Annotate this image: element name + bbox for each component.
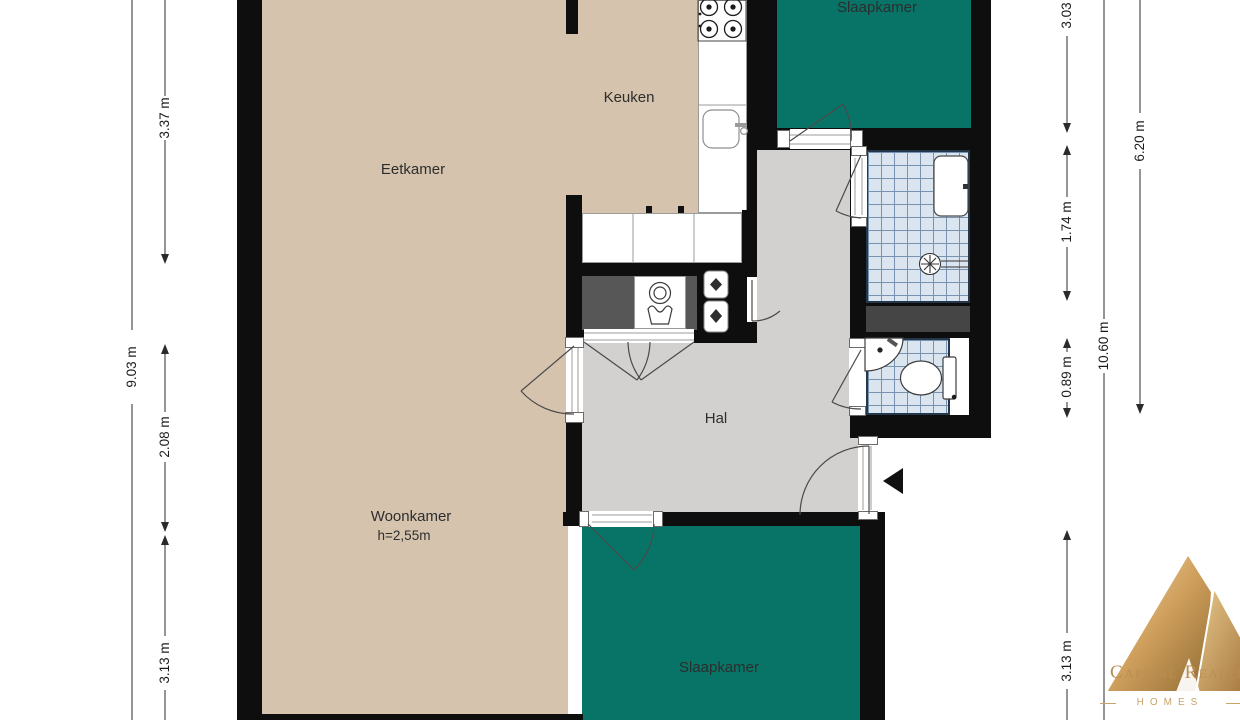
dim-left-9-03: 9.03 m — [123, 322, 141, 412]
door-opening-bedroom-top — [790, 129, 850, 149]
entrance-arrow-icon — [883, 468, 903, 494]
door-frame — [653, 511, 663, 527]
wall — [237, 714, 583, 720]
door-opening-woonkamer — [566, 348, 583, 412]
door-frame — [858, 436, 878, 445]
door-frame — [579, 511, 589, 527]
toilet-room-floor — [866, 338, 950, 415]
wall — [971, 0, 991, 145]
room-label-slaapkamer-bottom: Slaapkamer — [639, 659, 799, 676]
dim-right-1-74: 1.74 m — [1058, 177, 1076, 267]
dim-left-3-37: 3.37 m — [156, 73, 174, 163]
room-label-hal: Hal — [636, 410, 796, 427]
toilet-room-side-strip — [950, 338, 969, 415]
wall — [566, 195, 582, 347]
wall — [860, 512, 885, 720]
washing-machine-box — [634, 276, 686, 329]
wall — [747, 0, 777, 145]
door-frame — [565, 412, 584, 423]
shower-room-floor — [866, 150, 970, 303]
room-label-slaapkamer-top: Slaapkamer — [797, 0, 957, 16]
kitchen-counter-vertical — [698, 0, 747, 213]
door-frame — [565, 337, 584, 348]
dim-left-2-08: 2.08 m — [156, 392, 174, 482]
dim-right-10-60: 10.60 m — [1095, 301, 1113, 391]
dim-left-3-13: 3.13 m — [156, 618, 174, 708]
door-opening-bedroom-bottom — [588, 511, 654, 527]
tech-closet-door-opening — [747, 277, 757, 322]
hall-main-floor — [582, 343, 850, 512]
logo-tagline-text: HOMES — [1118, 697, 1222, 708]
dim-right-3-03: 3.03 m — [1058, 0, 1076, 53]
shower-door-opening — [851, 155, 867, 218]
dim-right-0-89: 0.89 m — [1058, 332, 1076, 422]
door-frame — [851, 146, 867, 156]
toilet-door-opening — [849, 347, 866, 406]
door-opening-closet — [584, 329, 694, 343]
dim-right-3-13: 3.13 m — [1058, 616, 1076, 706]
wall — [747, 143, 757, 276]
room-label-keuken: Keuken — [549, 89, 709, 106]
room-slaapkamer-top-floor — [777, 0, 971, 130]
shaft-band — [866, 306, 970, 332]
door-frame — [858, 511, 878, 520]
logo-brand-text: Capital Realti — [1110, 662, 1240, 684]
room-label-woonkamer-height: h=2,55m — [324, 528, 484, 543]
door-frame — [851, 217, 867, 227]
door-frame — [849, 338, 866, 348]
front-door-opening — [858, 443, 878, 513]
room-keuken-floor — [566, 0, 698, 213]
hall-corridor-floor — [757, 150, 852, 343]
floor-plan: Eetkamer Keuken Woonkamer h=2,55m Hal Sl… — [0, 0, 1240, 720]
door-frame — [849, 406, 866, 416]
room-eetkamer-woonkamer-floor — [262, 0, 568, 714]
room-label-eetkamer: Eetkamer — [333, 161, 493, 178]
door-frame — [777, 130, 790, 148]
room-slaapkamer-bottom-floor — [582, 526, 860, 720]
wall — [237, 0, 262, 720]
logo-dash-right — [1226, 703, 1240, 704]
logo-dash-left — [1100, 703, 1116, 704]
wall — [566, 0, 578, 34]
room-label-woonkamer: Woonkamer — [331, 508, 491, 525]
dim-right-6-20: 6.20 m — [1131, 96, 1149, 186]
wall — [582, 263, 757, 276]
kitchen-counter-row — [582, 213, 742, 263]
wall — [566, 418, 582, 512]
